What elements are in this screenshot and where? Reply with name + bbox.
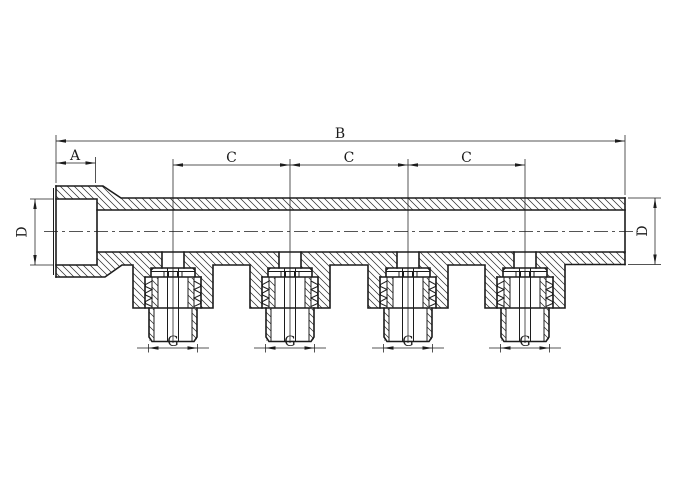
dim-label-g2: G [284,334,295,350]
dim-label-g4: G [519,334,530,350]
body-top-outline [56,186,625,198]
outlet-thread-labels: G G G G [167,334,530,350]
dim-label-c1: C [226,150,237,166]
dim-label-d-left: D [15,226,31,237]
dim-label-a: A [69,148,81,164]
inlet-socket-bore [56,199,97,265]
dimension-overall-length: B [56,126,625,195]
dimension-diameter-left: D [15,199,55,265]
dim-label-c2: C [344,150,355,166]
dim-label-d-right: D [635,225,651,236]
dimension-inlet-depth: A [56,148,96,183]
drawing-canvas: B A C C C D D G G G G [0,0,700,495]
main-bore [97,210,625,252]
manifold-technical-drawing: B A C C C D D G G G G [0,0,700,495]
dim-label-g3: G [402,334,413,350]
dimension-port-spacing: C C C [173,150,525,167]
dim-label-c3: C [461,150,472,166]
dim-label-g1: G [167,334,178,350]
dim-label-b: B [335,126,345,142]
